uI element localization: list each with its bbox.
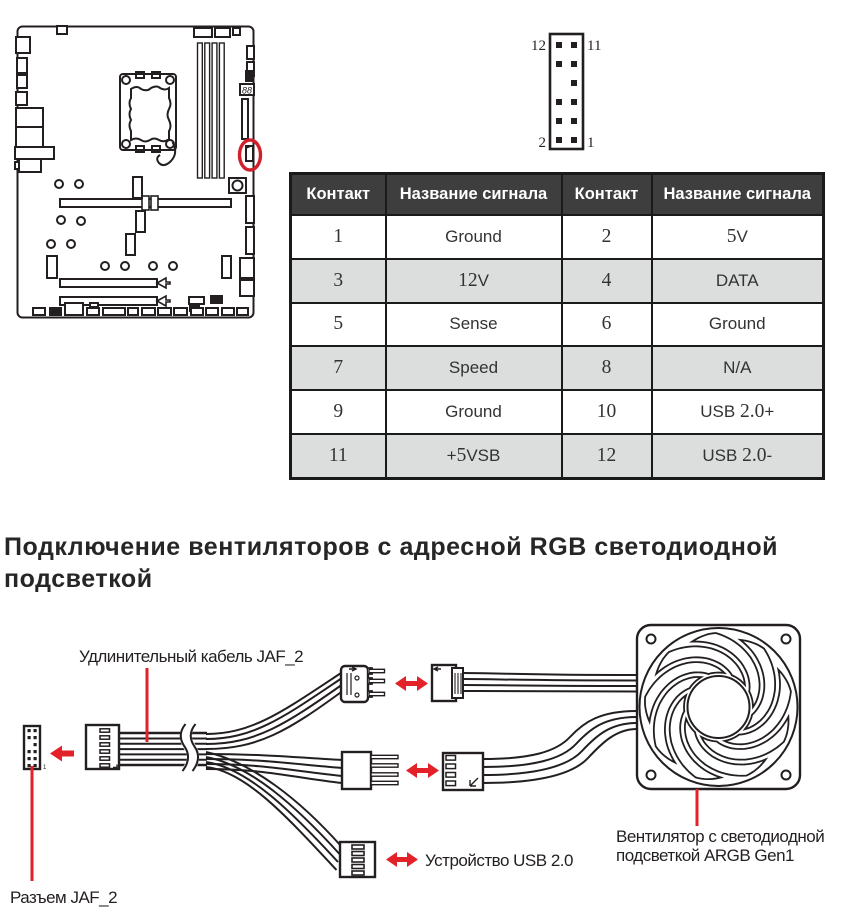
- svg-text:Вентилятор с светодиодной: Вентилятор с светодиодной: [616, 827, 824, 846]
- svg-text:2: 2: [539, 135, 547, 151]
- svg-text:подсветкой ARGB Gen1: подсветкой ARGB Gen1: [616, 846, 794, 865]
- svg-text:Разъем JAF_2: Разъем JAF_2: [10, 888, 117, 907]
- svg-text:88: 88: [242, 86, 252, 96]
- svg-text:Удлинительный кабель JAF_2: Удлинительный кабель JAF_2: [79, 647, 303, 666]
- svg-text:11: 11: [587, 38, 601, 54]
- svg-text:1: 1: [43, 765, 47, 771]
- svg-text:Устройство USB 2.0: Устройство USB 2.0: [425, 851, 573, 870]
- svg-text:1: 1: [587, 135, 595, 151]
- svg-text:12: 12: [531, 38, 546, 54]
